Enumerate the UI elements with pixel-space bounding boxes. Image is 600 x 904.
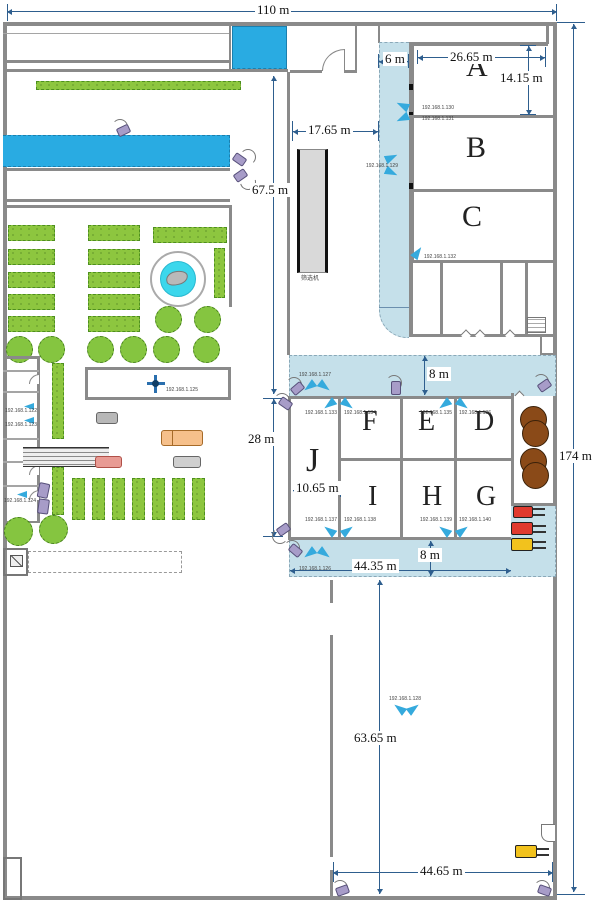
block-wall-left <box>288 396 291 540</box>
hedge-bed <box>52 467 64 515</box>
tank <box>522 462 549 489</box>
forklift-red-icon <box>511 522 533 535</box>
truck-cab-line <box>172 431 173 445</box>
door-notch <box>460 329 471 340</box>
camera-131-label: 192.168.1.131 <box>422 117 454 122</box>
dim-26-65-label: 26.65 m <box>448 50 495 64</box>
row-wall <box>409 262 413 337</box>
hedge-bed <box>112 478 125 520</box>
post-device-icon <box>391 381 401 395</box>
building-line <box>3 33 230 34</box>
wall <box>378 23 380 43</box>
yard-wall-left <box>330 635 333 857</box>
room-h-label: H <box>422 483 442 511</box>
dim-tick <box>552 862 553 882</box>
building-wall <box>3 60 230 63</box>
dim-tick <box>333 862 334 882</box>
tree <box>39 515 68 544</box>
block-wall-inner <box>338 396 341 540</box>
door-mark <box>409 84 413 90</box>
tree <box>193 336 220 363</box>
hedge-bed <box>172 478 185 520</box>
dim-28-label: 28 m <box>246 432 276 446</box>
block-wall-inner <box>400 396 403 540</box>
forklift-red-icon <box>513 506 533 518</box>
door-notch <box>504 329 515 340</box>
camera-124-icon <box>17 491 27 498</box>
camera-122-label: 192.168.1.122 <box>5 409 37 414</box>
tank <box>522 420 549 447</box>
door-arc <box>322 49 345 71</box>
hedge-bed <box>88 272 140 288</box>
hedge-bed <box>132 478 145 520</box>
room-c-wall-bottom <box>409 260 557 263</box>
truck-orange <box>161 430 203 446</box>
dim-tick <box>7 4 8 21</box>
camera-132-label: 192.168.1.132 <box>424 255 456 260</box>
dim-44-35-label: 44.35 m <box>352 559 399 573</box>
dim-174-label: 174 m <box>557 449 594 463</box>
van-grey <box>173 456 201 468</box>
dim-44-65-label: 44.65 m <box>418 864 465 878</box>
tree <box>87 336 114 363</box>
dim-tick <box>378 54 379 68</box>
dim-line-28 <box>273 399 274 537</box>
garden-wall-right <box>229 205 232 307</box>
car-grey <box>96 412 118 424</box>
dim-8-bottom-label: 8 m <box>418 548 442 562</box>
hedge-bed <box>88 294 140 310</box>
wall <box>344 70 357 73</box>
camera-135-label: 192.168.1.135 <box>420 411 452 416</box>
yard-wall-left <box>330 580 333 603</box>
center-wall <box>287 72 290 355</box>
room-g-label: G <box>476 483 496 511</box>
camera-124-label: 192.168.1.124 <box>4 499 36 504</box>
cyan-block <box>232 26 287 69</box>
hedge-bed <box>152 478 165 520</box>
dim-6-label: 6 m <box>383 52 407 66</box>
dim-line-8-top <box>424 356 425 395</box>
door-niche <box>541 824 555 842</box>
camera-138-label: 192.168.1.138 <box>344 518 376 523</box>
hedge-bed <box>72 478 85 520</box>
corridor-wall <box>409 42 414 262</box>
dim-tick <box>378 121 379 141</box>
camera-126-label: 192.168.1.126 <box>299 567 331 572</box>
building-wall <box>3 69 288 72</box>
hedge-bed <box>8 272 55 288</box>
forklift-prongs-icon <box>533 541 546 549</box>
camera-139-icon <box>437 523 453 538</box>
corridor-tick <box>379 307 409 308</box>
camera-137-icon <box>322 523 338 538</box>
hedge-bed <box>88 225 140 241</box>
forklift-yellow-icon <box>511 538 533 551</box>
dim-63-65-label: 63.65 m <box>352 731 399 745</box>
parking-dashed-area <box>28 551 182 573</box>
tree <box>38 336 65 363</box>
car-red <box>95 456 122 468</box>
camera-130-label: 192.168.1.130 <box>422 106 454 111</box>
camera-127-label: 192.168.1.127 <box>299 373 331 378</box>
hedge-bed <box>92 478 105 520</box>
forklift-yellow-icon <box>515 845 537 858</box>
left-building-divider <box>3 485 39 487</box>
corner-room <box>3 857 22 900</box>
room-j-label: J <box>306 444 319 478</box>
dim-8-top-label: 8 m <box>427 367 451 381</box>
hedge-bed <box>8 316 55 332</box>
garden-wall-top <box>3 205 232 208</box>
left-building-divider <box>3 438 39 440</box>
dim-110-label: 110 m <box>255 3 291 17</box>
door-notch <box>474 329 485 340</box>
camera-128-label: 192.168.1.128 <box>389 697 421 702</box>
camera-125-label: 192.168.1.125 <box>166 388 198 393</box>
hedge-bed <box>8 225 55 241</box>
scooter-icon <box>37 482 51 499</box>
camera-139-label: 192.168.1.139 <box>420 518 452 523</box>
camera-128-icon <box>406 701 422 716</box>
dim-tick <box>557 22 585 23</box>
dim-tick <box>520 114 536 115</box>
dim-67-5-label: 67.5 m <box>250 183 290 197</box>
camera-128-icon <box>392 701 408 716</box>
wall <box>290 70 322 73</box>
forklift-prongs-icon <box>533 508 545 516</box>
dim-tick <box>556 4 557 21</box>
room-bc-wall <box>409 189 557 192</box>
hedge-bed <box>52 363 64 439</box>
block-wall-inner <box>454 396 457 540</box>
hedge-bed <box>8 294 55 310</box>
pool-strip <box>3 135 230 167</box>
camera-134-label: 192.168.1.134 <box>344 411 376 416</box>
hedge-bed <box>88 249 140 265</box>
camera-140-label: 192.168.1.140 <box>459 518 491 523</box>
hedge-bed <box>88 316 140 332</box>
row-wall <box>500 262 503 336</box>
block-wall-middle <box>338 458 514 461</box>
left-building-wall <box>3 356 40 359</box>
hedge-bed <box>153 227 227 243</box>
tree <box>120 336 147 363</box>
wall <box>3 168 230 171</box>
camera-133-label: 192.168.1.133 <box>305 411 337 416</box>
wall <box>355 23 357 71</box>
room-b-label: B <box>466 133 486 163</box>
forklift-prongs-icon <box>537 848 549 856</box>
dim-tick <box>545 47 546 67</box>
wall <box>3 199 230 202</box>
room-c-label: C <box>462 202 482 232</box>
tree <box>153 336 180 363</box>
tree <box>155 306 182 333</box>
camera-137-label: 192.168.1.137 <box>305 518 337 523</box>
corridor <box>379 42 409 338</box>
wall-stub <box>546 26 549 44</box>
hedge-bed <box>8 249 55 265</box>
row-wall <box>440 262 443 336</box>
hedge-bed <box>192 478 205 520</box>
building-wall <box>229 22 231 70</box>
room-i-label: I <box>368 483 377 511</box>
hedge-strip <box>36 81 241 90</box>
forklift-prongs-icon <box>533 525 546 533</box>
equipment-box <box>10 555 23 567</box>
left-building-divider <box>3 391 39 393</box>
tree <box>194 306 221 333</box>
camera-123-label: 192.168.1.123 <box>5 423 37 428</box>
drone-camera-icon <box>152 380 159 387</box>
dim-17-65-label: 17.65 m <box>306 123 353 137</box>
scooter-icon <box>37 498 50 514</box>
camera-129-label: 192.168.1.129 <box>366 164 398 169</box>
camera-136-label: 192.168.1.136 <box>459 411 491 416</box>
camera-138-icon <box>340 523 356 538</box>
door-arc <box>29 374 40 384</box>
dim-10-65-label: 10.65 m <box>294 481 341 495</box>
dim-tick <box>292 121 293 141</box>
hedge-bed <box>214 248 225 298</box>
outer-wall-bottom <box>3 896 557 900</box>
screening-machine-label: 筛选机 <box>301 276 319 282</box>
dim-line-67-5 <box>273 76 274 394</box>
tree <box>4 517 33 546</box>
left-building-divider <box>3 370 39 372</box>
dim-tick <box>557 894 585 895</box>
dim-tick <box>520 45 536 46</box>
dim-tick <box>417 50 418 64</box>
screening-machine <box>297 149 328 273</box>
dim-tick <box>408 54 409 68</box>
stairs <box>527 317 546 333</box>
dim-14-15-label: 14.15 m <box>498 71 545 85</box>
site-plan: 110 m 174 m 1 <box>0 0 600 904</box>
